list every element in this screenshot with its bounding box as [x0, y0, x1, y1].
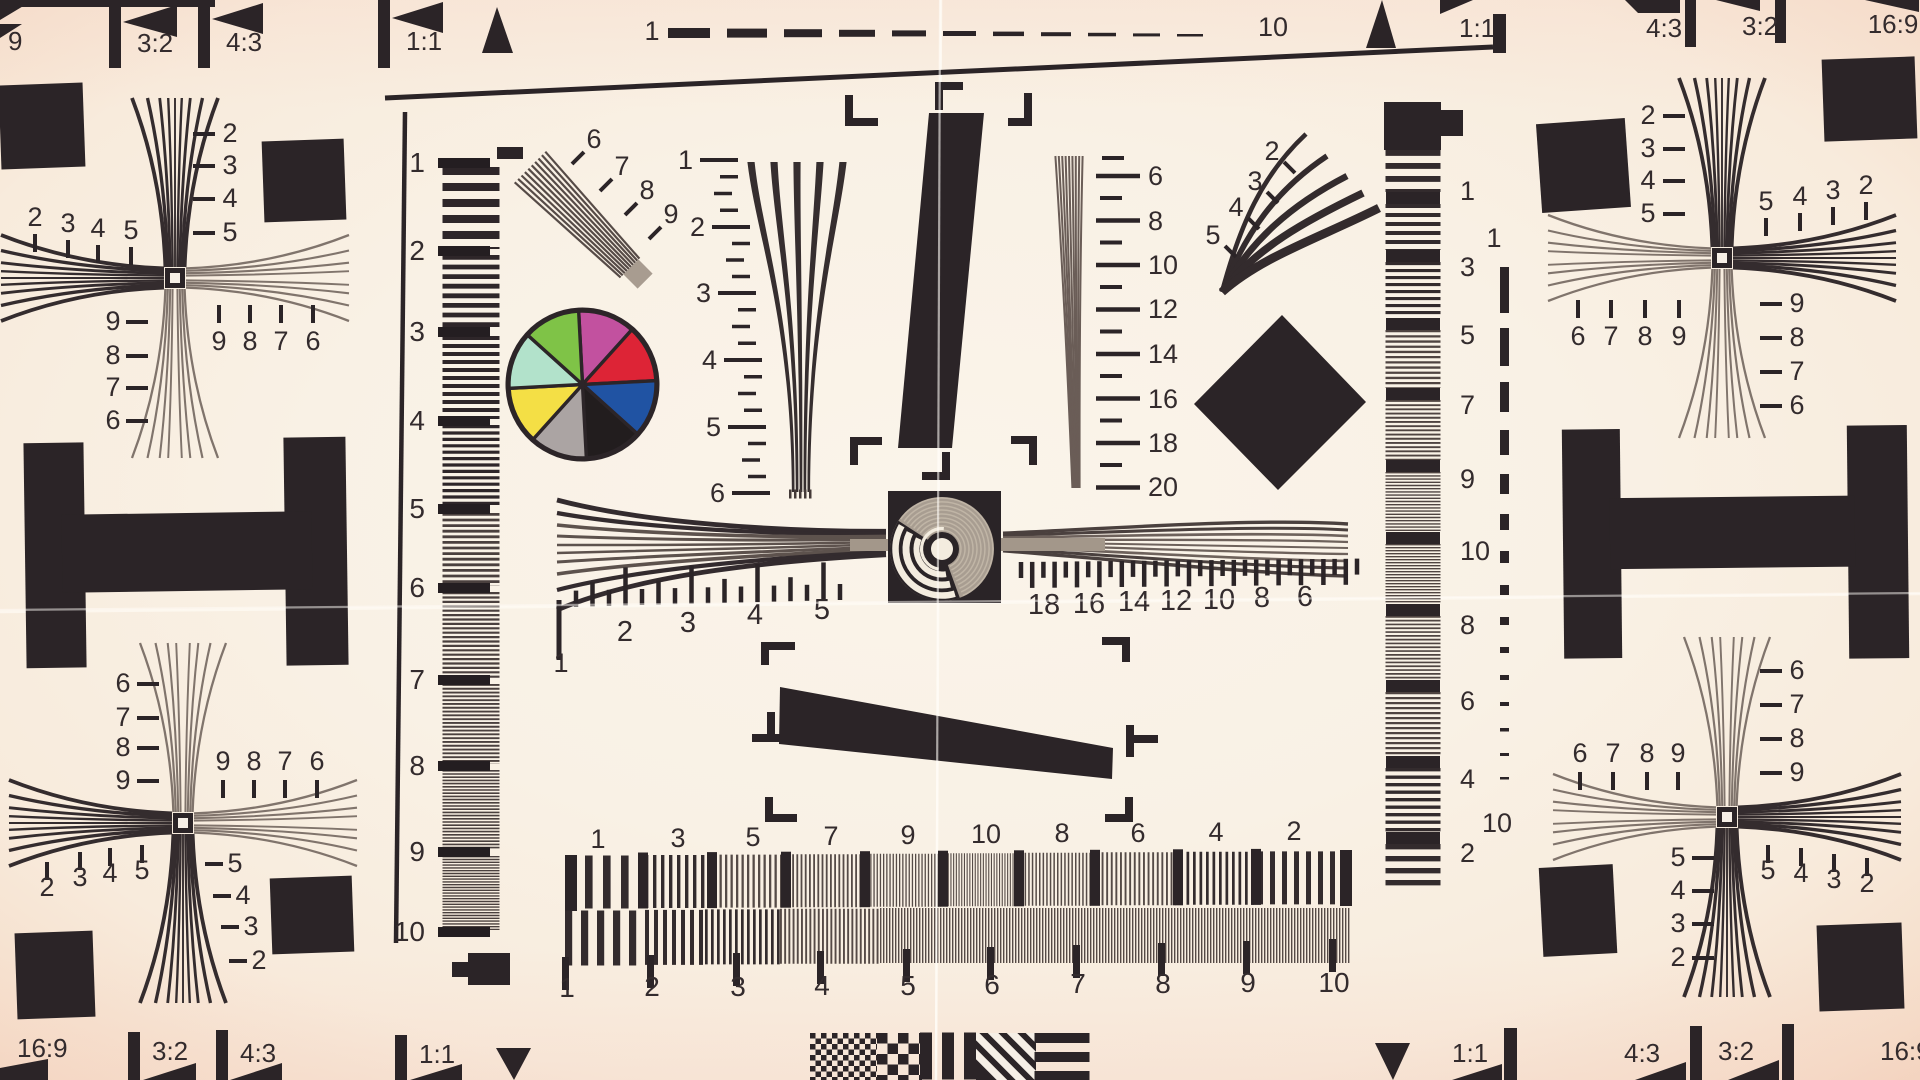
svg-text:16: 16	[1148, 384, 1178, 414]
svg-text:1: 1	[409, 147, 425, 178]
svg-text:4: 4	[1670, 875, 1685, 905]
svg-text:8: 8	[1155, 968, 1171, 999]
svg-text:5: 5	[745, 822, 760, 852]
svg-text:8: 8	[409, 750, 425, 781]
svg-text:4: 4	[1792, 181, 1807, 211]
svg-text:10: 10	[1460, 536, 1490, 566]
svg-text:3: 3	[1825, 175, 1840, 205]
svg-text:4: 4	[702, 345, 717, 375]
svg-text:7: 7	[823, 821, 838, 851]
svg-text:20: 20	[1148, 472, 1178, 502]
svg-text:4: 4	[102, 858, 117, 888]
svg-text:2: 2	[1264, 136, 1279, 166]
svg-text:4:3: 4:3	[240, 1038, 276, 1068]
svg-text:7: 7	[105, 372, 120, 402]
svg-text:8: 8	[1639, 738, 1654, 768]
svg-text:2: 2	[222, 118, 237, 148]
svg-text:8: 8	[246, 746, 261, 776]
svg-text:3: 3	[1826, 864, 1841, 894]
svg-text:10: 10	[1318, 967, 1349, 998]
svg-text:2: 2	[1858, 170, 1873, 200]
svg-text:8: 8	[1054, 818, 1069, 848]
svg-text:4:3: 4:3	[1624, 1038, 1660, 1068]
svg-text:3: 3	[243, 911, 258, 941]
svg-text:10: 10	[1148, 250, 1178, 280]
svg-text:1: 1	[553, 648, 568, 678]
svg-text:9: 9	[1671, 321, 1686, 351]
svg-text:1:1: 1:1	[419, 1039, 455, 1069]
svg-text:12: 12	[1160, 585, 1192, 617]
svg-text:18: 18	[1148, 428, 1178, 458]
svg-text:7: 7	[273, 326, 288, 356]
svg-text:16: 16	[1073, 588, 1105, 620]
svg-text:7: 7	[1789, 356, 1804, 386]
svg-text:6: 6	[1570, 321, 1585, 351]
svg-text:8: 8	[105, 340, 120, 370]
svg-text:10: 10	[1258, 12, 1288, 42]
svg-text:9: 9	[1240, 967, 1256, 998]
svg-text:8: 8	[1789, 322, 1804, 352]
svg-text:9: 9	[663, 199, 678, 229]
svg-text:6: 6	[710, 478, 725, 508]
svg-text:12: 12	[1148, 294, 1178, 324]
svg-text:9: 9	[211, 326, 226, 356]
svg-text:3: 3	[1247, 166, 1262, 196]
svg-text:4: 4	[1460, 764, 1475, 794]
svg-text:3: 3	[696, 278, 711, 308]
svg-text:3: 3	[680, 607, 696, 639]
svg-text:4: 4	[409, 405, 425, 436]
svg-text:2: 2	[39, 872, 54, 902]
svg-text:2: 2	[1286, 816, 1301, 846]
svg-text:8: 8	[115, 732, 130, 762]
svg-text:2: 2	[1640, 100, 1655, 130]
svg-text:7: 7	[1605, 738, 1620, 768]
svg-text:16:9: 16:9	[17, 1033, 68, 1063]
svg-text:1:1: 1:1	[406, 26, 442, 56]
svg-text:4: 4	[814, 970, 830, 1001]
svg-text:3:2: 3:2	[152, 1036, 188, 1066]
svg-text:7: 7	[614, 151, 629, 181]
svg-text:14: 14	[1118, 586, 1150, 618]
svg-text:3: 3	[222, 150, 237, 180]
svg-text:1:1: 1:1	[1459, 13, 1495, 43]
svg-text:8: 8	[639, 175, 654, 205]
svg-text:7: 7	[115, 702, 130, 732]
svg-text:1: 1	[644, 16, 659, 46]
svg-text:4: 4	[1640, 165, 1655, 195]
svg-text:16:9: 16:9	[1868, 9, 1919, 39]
svg-text:2: 2	[1460, 838, 1475, 868]
svg-text:7: 7	[1603, 321, 1618, 351]
svg-text:5: 5	[814, 594, 830, 626]
svg-text:6: 6	[1789, 390, 1804, 420]
svg-text:6: 6	[586, 124, 601, 154]
svg-text:8: 8	[1637, 321, 1652, 351]
svg-text:6: 6	[309, 746, 324, 776]
svg-text:6: 6	[1572, 738, 1587, 768]
svg-text:6: 6	[1130, 818, 1145, 848]
svg-text:9: 9	[115, 765, 130, 795]
svg-text:4:3: 4:3	[1646, 13, 1682, 43]
svg-text:6: 6	[115, 668, 130, 698]
svg-text:3: 3	[1460, 252, 1475, 282]
svg-text:8: 8	[1148, 206, 1163, 236]
svg-text:2: 2	[644, 971, 660, 1002]
svg-text:7: 7	[409, 664, 425, 695]
svg-text:4: 4	[1228, 192, 1243, 222]
svg-text:5: 5	[900, 970, 916, 1001]
svg-text:9: 9	[1670, 738, 1685, 768]
svg-text:3:2: 3:2	[1742, 11, 1778, 41]
svg-text:10: 10	[394, 916, 425, 947]
svg-text:1: 1	[1460, 176, 1475, 206]
svg-text:2: 2	[617, 616, 633, 648]
svg-text:7: 7	[1460, 390, 1475, 420]
svg-text:2: 2	[690, 212, 705, 242]
svg-text:3: 3	[1670, 908, 1685, 938]
svg-text:5: 5	[409, 493, 425, 524]
svg-text:4: 4	[1793, 858, 1808, 888]
svg-text:3: 3	[730, 971, 746, 1002]
svg-text:3: 3	[409, 316, 425, 347]
svg-text:3:2: 3:2	[1718, 1036, 1754, 1066]
svg-text:8: 8	[242, 326, 257, 356]
svg-text:18: 18	[1028, 589, 1060, 621]
svg-text:10: 10	[1482, 808, 1512, 838]
svg-text:9: 9	[1789, 288, 1804, 318]
svg-text:4: 4	[235, 880, 250, 910]
svg-text:4:3: 4:3	[226, 27, 262, 57]
svg-text:9: 9	[1460, 464, 1475, 494]
svg-text:2: 2	[1859, 868, 1874, 898]
svg-text:5: 5	[123, 215, 138, 245]
svg-text:9: 9	[1789, 757, 1804, 787]
svg-text:5: 5	[1758, 186, 1773, 216]
svg-text:9: 9	[215, 746, 230, 776]
svg-text:3: 3	[72, 862, 87, 892]
svg-text:7: 7	[277, 746, 292, 776]
svg-text:6: 6	[1789, 655, 1804, 685]
svg-text:1:1: 1:1	[1452, 1038, 1488, 1068]
svg-text:9: 9	[8, 26, 22, 56]
svg-text:4: 4	[222, 183, 237, 213]
svg-text:16:9: 16:9	[1880, 1036, 1920, 1066]
svg-text:3: 3	[670, 823, 685, 853]
svg-text:4: 4	[90, 213, 105, 243]
svg-text:6: 6	[105, 405, 120, 435]
svg-text:10: 10	[971, 819, 1001, 849]
svg-text:1: 1	[559, 972, 575, 1003]
svg-text:1: 1	[678, 145, 693, 175]
svg-text:9: 9	[105, 306, 120, 336]
svg-text:14: 14	[1148, 339, 1178, 369]
svg-text:8: 8	[1789, 723, 1804, 753]
svg-text:6: 6	[1460, 686, 1475, 716]
svg-text:9: 9	[409, 836, 425, 867]
svg-text:5: 5	[1460, 320, 1475, 350]
svg-text:5: 5	[1205, 220, 1220, 250]
svg-text:8: 8	[1460, 610, 1475, 640]
svg-text:6: 6	[1297, 581, 1313, 613]
svg-text:5: 5	[1760, 855, 1775, 885]
svg-text:3: 3	[60, 208, 75, 238]
svg-text:1: 1	[1486, 223, 1501, 253]
svg-text:1: 1	[590, 824, 605, 854]
svg-text:5: 5	[222, 217, 237, 247]
svg-text:2: 2	[251, 945, 266, 975]
svg-text:4: 4	[1208, 817, 1223, 847]
svg-text:3:2: 3:2	[137, 28, 173, 58]
svg-text:5: 5	[1670, 842, 1685, 872]
svg-text:6: 6	[984, 969, 1000, 1000]
svg-text:5: 5	[134, 855, 149, 885]
svg-text:5: 5	[706, 412, 721, 442]
svg-text:2: 2	[1670, 942, 1685, 972]
svg-text:7: 7	[1070, 968, 1086, 999]
svg-text:2: 2	[27, 202, 42, 232]
svg-text:5: 5	[227, 848, 242, 878]
svg-text:5: 5	[1640, 198, 1655, 228]
svg-text:6: 6	[409, 572, 425, 603]
svg-text:6: 6	[1148, 161, 1163, 191]
svg-text:3: 3	[1640, 133, 1655, 163]
svg-text:6: 6	[305, 326, 320, 356]
svg-text:9: 9	[900, 820, 915, 850]
svg-text:2: 2	[409, 235, 425, 266]
svg-text:7: 7	[1789, 689, 1804, 719]
